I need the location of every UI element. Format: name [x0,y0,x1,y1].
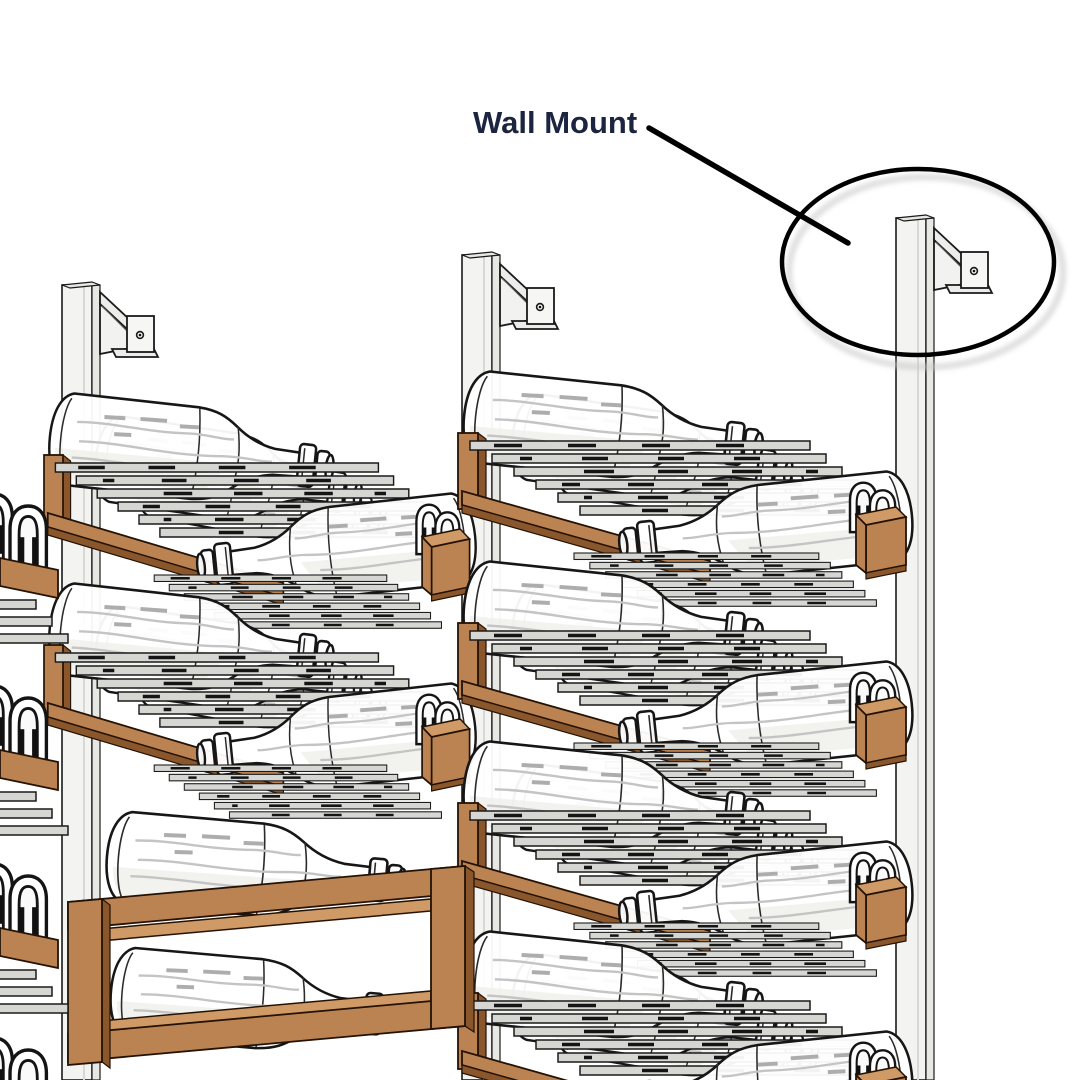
vertical-post-right [896,215,934,1080]
crate-right-stile [431,866,465,1029]
callout-label: Wall Mount [473,105,637,140]
crate-left-stile [68,899,102,1065]
wine-rack-wall-mount-diagram: Wall Mount [0,0,1080,1080]
